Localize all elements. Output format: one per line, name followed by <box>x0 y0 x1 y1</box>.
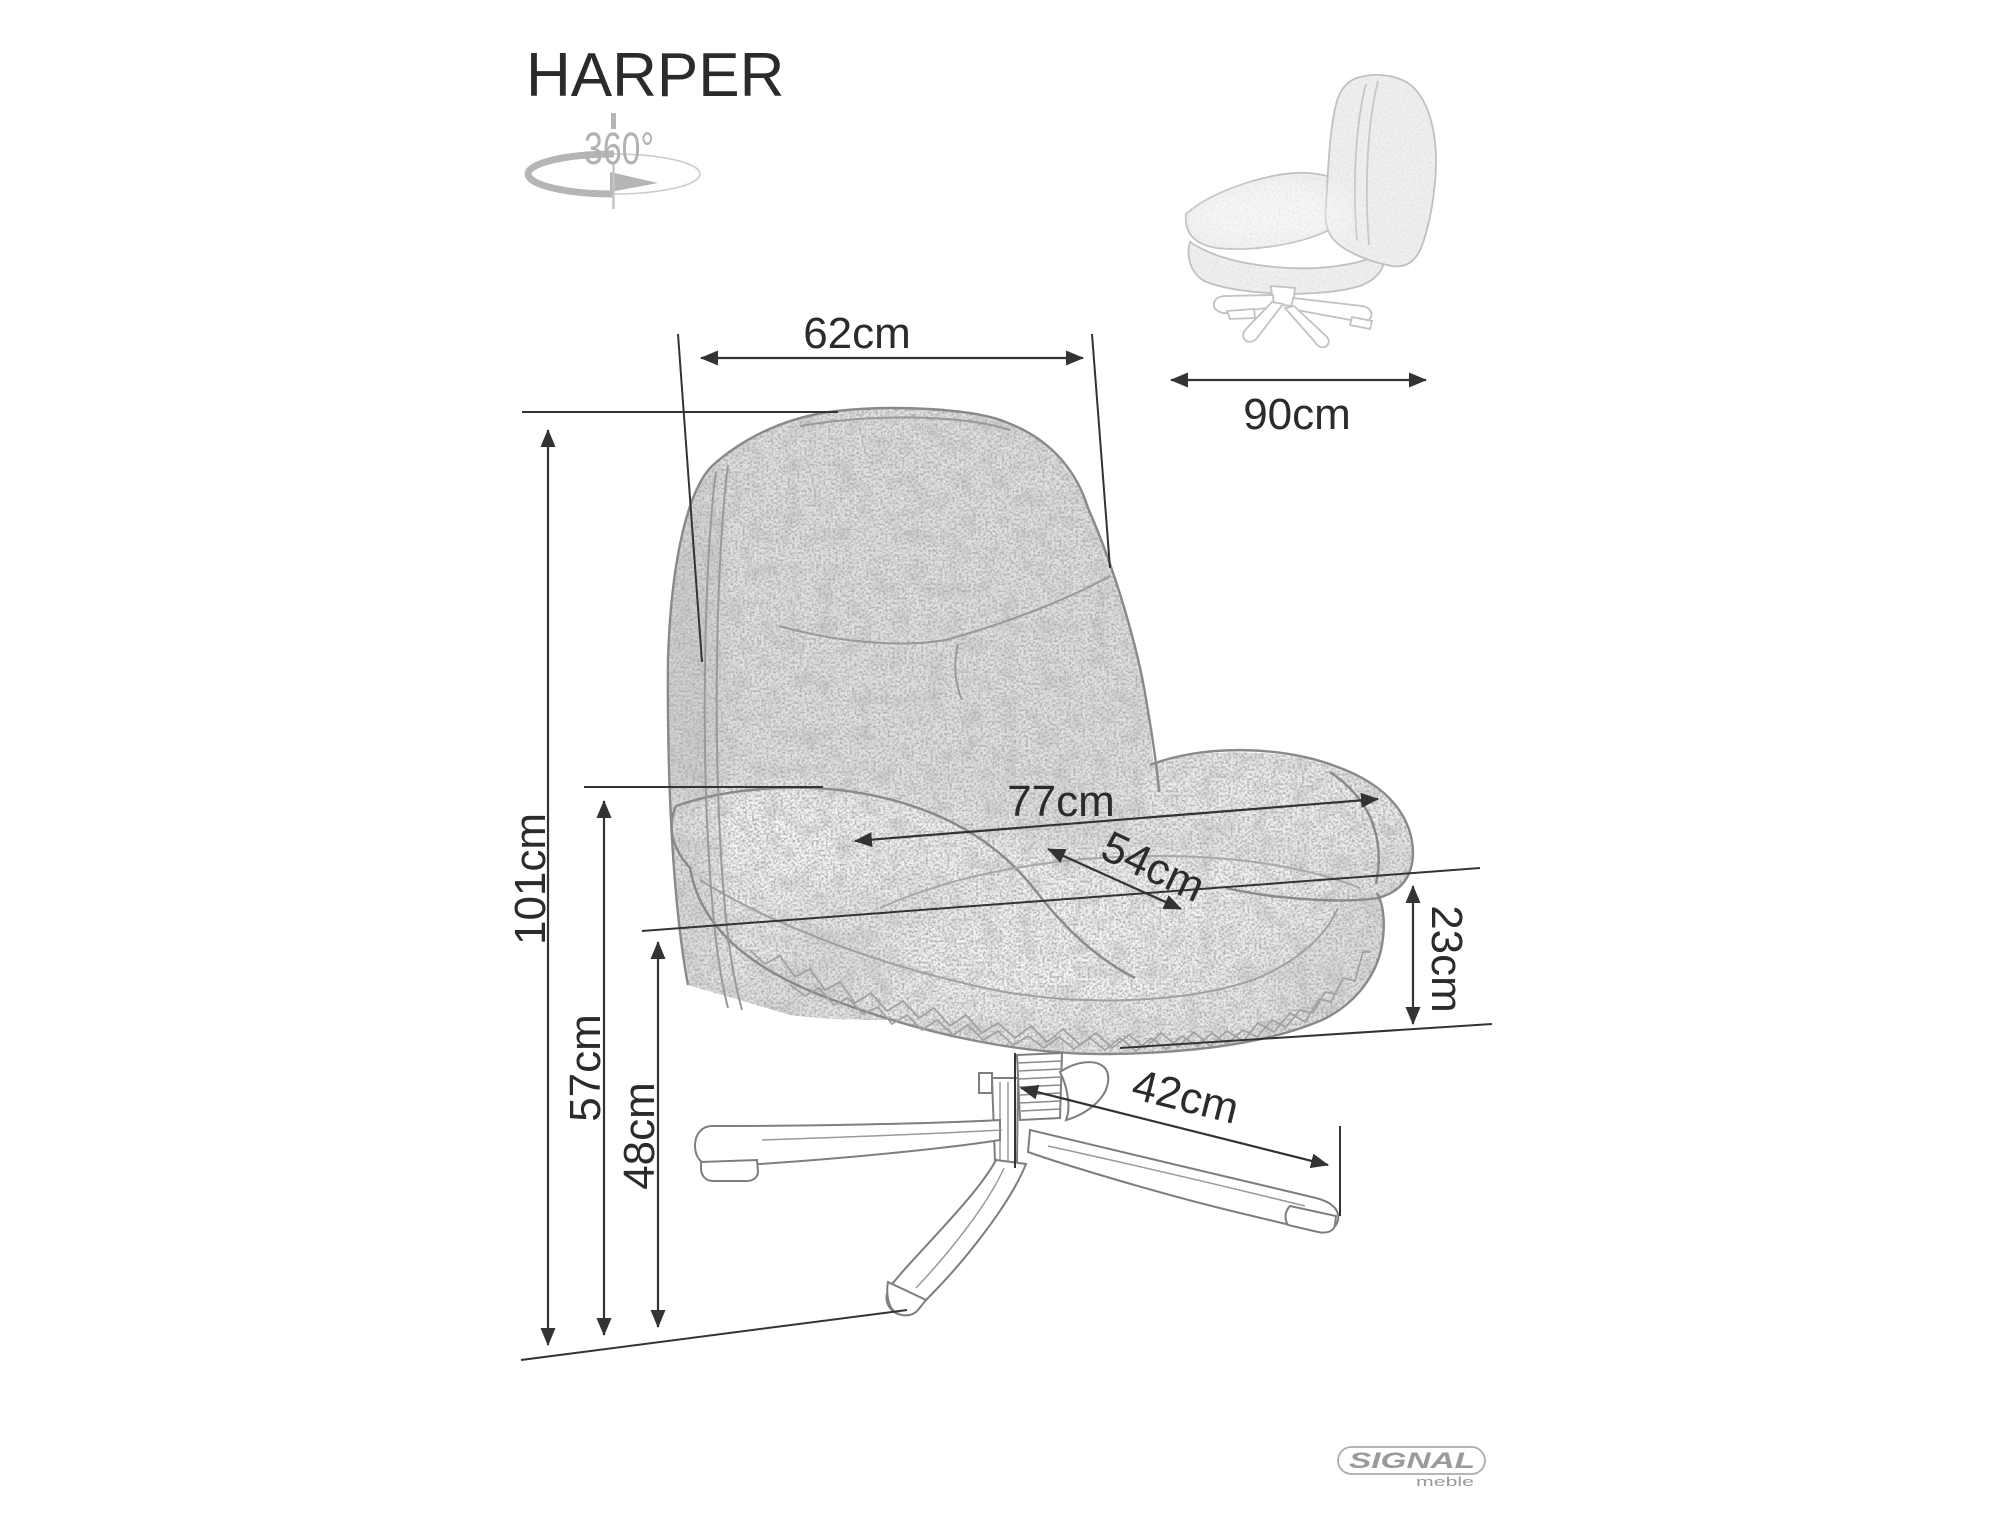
svg-text:101cm: 101cm <box>506 813 555 945</box>
svg-text:360°: 360° <box>584 123 654 174</box>
svg-text:77cm: 77cm <box>1007 777 1115 826</box>
svg-text:meble: meble <box>1416 1475 1474 1489</box>
svg-text:SIGNAL: SIGNAL <box>1349 1448 1475 1473</box>
svg-text:HARPER: HARPER <box>526 41 784 110</box>
svg-text:62cm: 62cm <box>803 309 911 358</box>
svg-text:48cm: 48cm <box>615 1082 664 1190</box>
svg-text:90cm: 90cm <box>1243 390 1351 439</box>
svg-text:57cm: 57cm <box>561 1014 610 1122</box>
svg-text:23cm: 23cm <box>1422 905 1471 1013</box>
